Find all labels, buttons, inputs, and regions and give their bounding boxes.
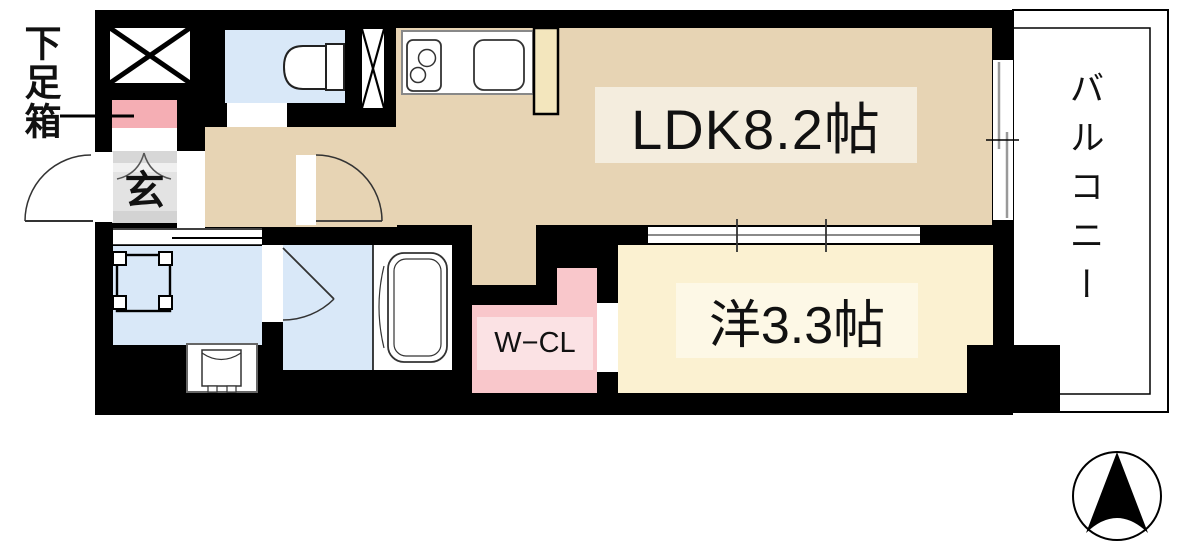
balcony-label: バルコニー bbox=[1058, 70, 1110, 370]
wall-block-balcony bbox=[1013, 345, 1060, 411]
ldk-room-label: LDK8.2帖 bbox=[595, 87, 917, 163]
north-arrow-compass-icon bbox=[1073, 452, 1161, 540]
wcl-doorway-gap bbox=[597, 303, 618, 372]
tall-cabinet bbox=[534, 28, 558, 114]
entrance-step bbox=[112, 128, 177, 151]
toilet-doorway-gap bbox=[227, 103, 287, 128]
pipe-space-x-icon bbox=[362, 29, 384, 108]
entrance-door-swing bbox=[25, 155, 93, 221]
entrance-hall-opening bbox=[177, 151, 205, 228]
washroom-floor bbox=[113, 246, 262, 345]
hall-ldk-doorway-gap bbox=[296, 155, 316, 225]
entrance-label: 玄 bbox=[112, 153, 177, 221]
shaft-x-box-icon bbox=[110, 28, 190, 83]
floor-plan-drawing bbox=[0, 0, 1179, 552]
shoe-box bbox=[112, 100, 177, 128]
western-room-label: 洋3.3帖 bbox=[676, 283, 918, 358]
bathtub-icon bbox=[379, 253, 447, 362]
shoe-box-label: 下足箱 bbox=[16, 24, 62, 154]
bathroom-doorway-gap bbox=[262, 245, 283, 322]
toilet-fixture-icon bbox=[284, 44, 344, 90]
entrance-doorway-gap bbox=[95, 152, 113, 222]
bathroom-floor bbox=[283, 245, 373, 370]
floor-plan: LDK8.2帖 洋3.3帖 W−CL 玄 バルコニー 下足箱 bbox=[0, 0, 1179, 552]
washbasin-icon bbox=[187, 344, 257, 392]
walk-in-closet-label: W−CL bbox=[477, 317, 593, 370]
washroom-sliding-door bbox=[113, 228, 262, 245]
kitchen-counter-icon bbox=[402, 31, 533, 94]
